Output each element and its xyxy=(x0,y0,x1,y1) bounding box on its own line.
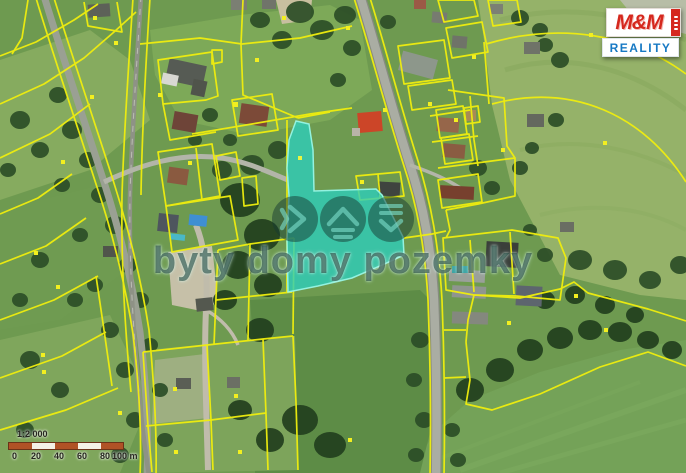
scale-bar xyxy=(8,442,124,450)
scale-tick: 60 xyxy=(77,451,87,461)
agency-logo-side-strip xyxy=(671,9,680,36)
agency-logo-top: M&M xyxy=(606,8,681,37)
agency-logo-reality-text: REALITY xyxy=(602,38,679,57)
map-screenshot: byty domy pozemky M&M REALITY 1:2 000 0 … xyxy=(0,0,686,473)
scale-tick: 0 xyxy=(12,451,17,461)
scale-tick-labels: 0 20 40 60 80 100 m xyxy=(6,451,146,463)
scale-tick: 80 xyxy=(100,451,110,461)
scale-tick: 20 xyxy=(31,451,41,461)
scale-tick: 40 xyxy=(54,451,64,461)
agency-logo-mm-text: M&M xyxy=(607,9,671,36)
agency-logo: M&M REALITY xyxy=(602,8,679,57)
scale-tick: 100 m xyxy=(112,451,138,461)
aerial-map xyxy=(0,0,686,473)
map-scale: 1:2 000 0 20 40 60 80 100 m xyxy=(6,429,146,469)
scale-ratio-label: 1:2 000 xyxy=(17,429,48,439)
